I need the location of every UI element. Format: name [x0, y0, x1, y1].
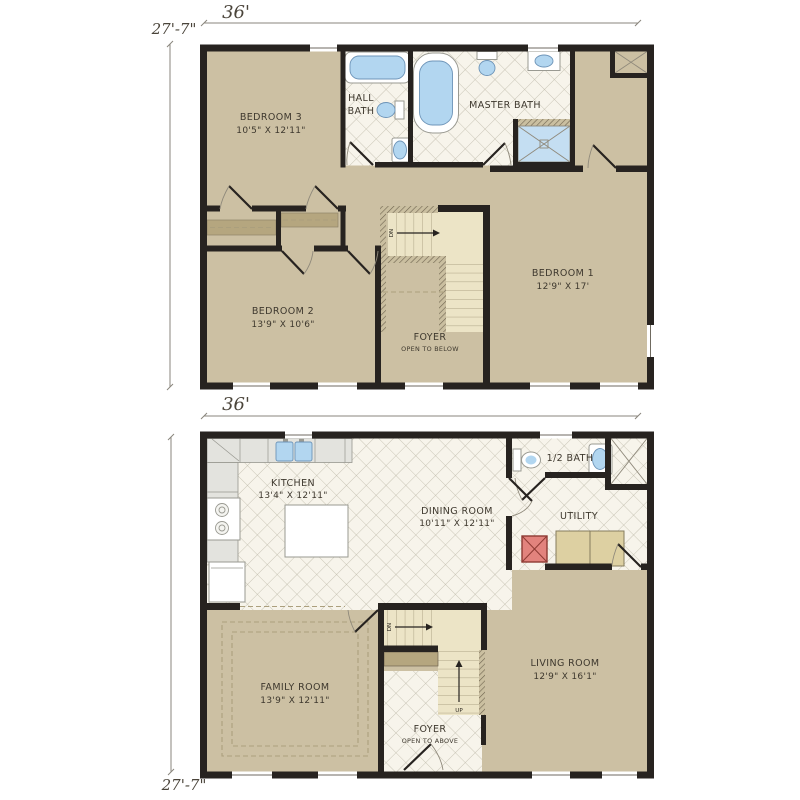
- toilet: [477, 52, 497, 60]
- room-label-dining: DINING ROOM: [421, 506, 493, 517]
- room-note-foyer-upper: OPEN TO BELOW: [401, 345, 459, 353]
- window: [600, 383, 638, 390]
- room-label-master-bath: MASTER BATH: [469, 100, 541, 111]
- lower-height-dim: 27'-7": [161, 776, 207, 794]
- room-label-kitchen: KITCHEN: [271, 478, 315, 489]
- window: [318, 383, 357, 390]
- window: [647, 325, 654, 357]
- window: [528, 45, 558, 52]
- stair-railing: [380, 256, 446, 263]
- room-label-bedroom-2: BEDROOM 2: [252, 306, 314, 317]
- window: [233, 383, 270, 390]
- room-size-bedroom-1: 12'9" X 17': [537, 282, 590, 292]
- window: [530, 383, 570, 390]
- window: [285, 432, 312, 439]
- window: [602, 772, 637, 779]
- shower: [518, 119, 570, 162]
- upper-height-dim: 27'-7": [151, 20, 197, 38]
- stair-railing: [479, 650, 485, 715]
- upper-floor-plan: DN: [151, 2, 654, 390]
- room-label-living: LIVING ROOM: [530, 658, 599, 669]
- floor-plan-svg: DN: [0, 0, 800, 800]
- window: [310, 45, 337, 52]
- room-label-hall-bath-1: HALL: [348, 93, 374, 104]
- foyer-tile-floor: [384, 671, 438, 772]
- room-size-bedroom-3: 10'5" X 12'11": [236, 126, 305, 136]
- window: [540, 432, 572, 439]
- room-label-bedroom-3: BEDROOM 3: [240, 112, 302, 123]
- stair-up-label: UP: [455, 708, 463, 714]
- room-note-foyer-lower: OPEN TO ABOVE: [402, 737, 459, 745]
- stair-dn-label: DN: [389, 229, 395, 238]
- room-size-living: 12'9" X 16'1": [533, 672, 596, 682]
- window: [405, 383, 443, 390]
- window: [232, 772, 272, 779]
- water-heater: [522, 536, 547, 562]
- room-label-family: FAMILY ROOM: [260, 682, 329, 693]
- window: [318, 772, 357, 779]
- room-label-hall-bath-2: BATH: [348, 106, 375, 117]
- dryer: [590, 531, 624, 566]
- room-size-bedroom-2: 13'9" X 10'6": [251, 320, 314, 330]
- under-stair-closet: [384, 652, 438, 666]
- floor-plan-image: DN: [0, 0, 800, 800]
- kitchen-island: [285, 505, 348, 557]
- room-size-kitchen: 13'4" X 12'11": [258, 491, 327, 501]
- stair-railing: [439, 256, 446, 332]
- room-size-family: 13'9" X 12'11": [260, 696, 329, 706]
- upper-width-dim: 36': [222, 2, 250, 23]
- washer: [556, 531, 590, 566]
- toilet: [395, 101, 404, 119]
- lower-floor-plan: DN UP: [161, 394, 651, 794]
- lower-width-dim: 36': [222, 394, 250, 415]
- room-size-dining: 10'11" X 12'11": [419, 519, 494, 529]
- stair-dn-label: DN: [387, 623, 393, 632]
- stair-railing: [381, 206, 438, 213]
- room-label-bedroom-1: BEDROOM 1: [532, 268, 594, 279]
- window: [532, 772, 570, 779]
- room-label-utility: UTILITY: [560, 511, 598, 522]
- room-label-foyer-upper: FOYER: [414, 332, 447, 343]
- range: [207, 498, 240, 540]
- room-label-half-bath: 1/2 BATH: [547, 453, 594, 464]
- room-label-foyer-lower: FOYER: [414, 724, 447, 735]
- refrigerator: [209, 562, 245, 602]
- toilet: [513, 449, 521, 471]
- utility-fixtures: [522, 531, 624, 566]
